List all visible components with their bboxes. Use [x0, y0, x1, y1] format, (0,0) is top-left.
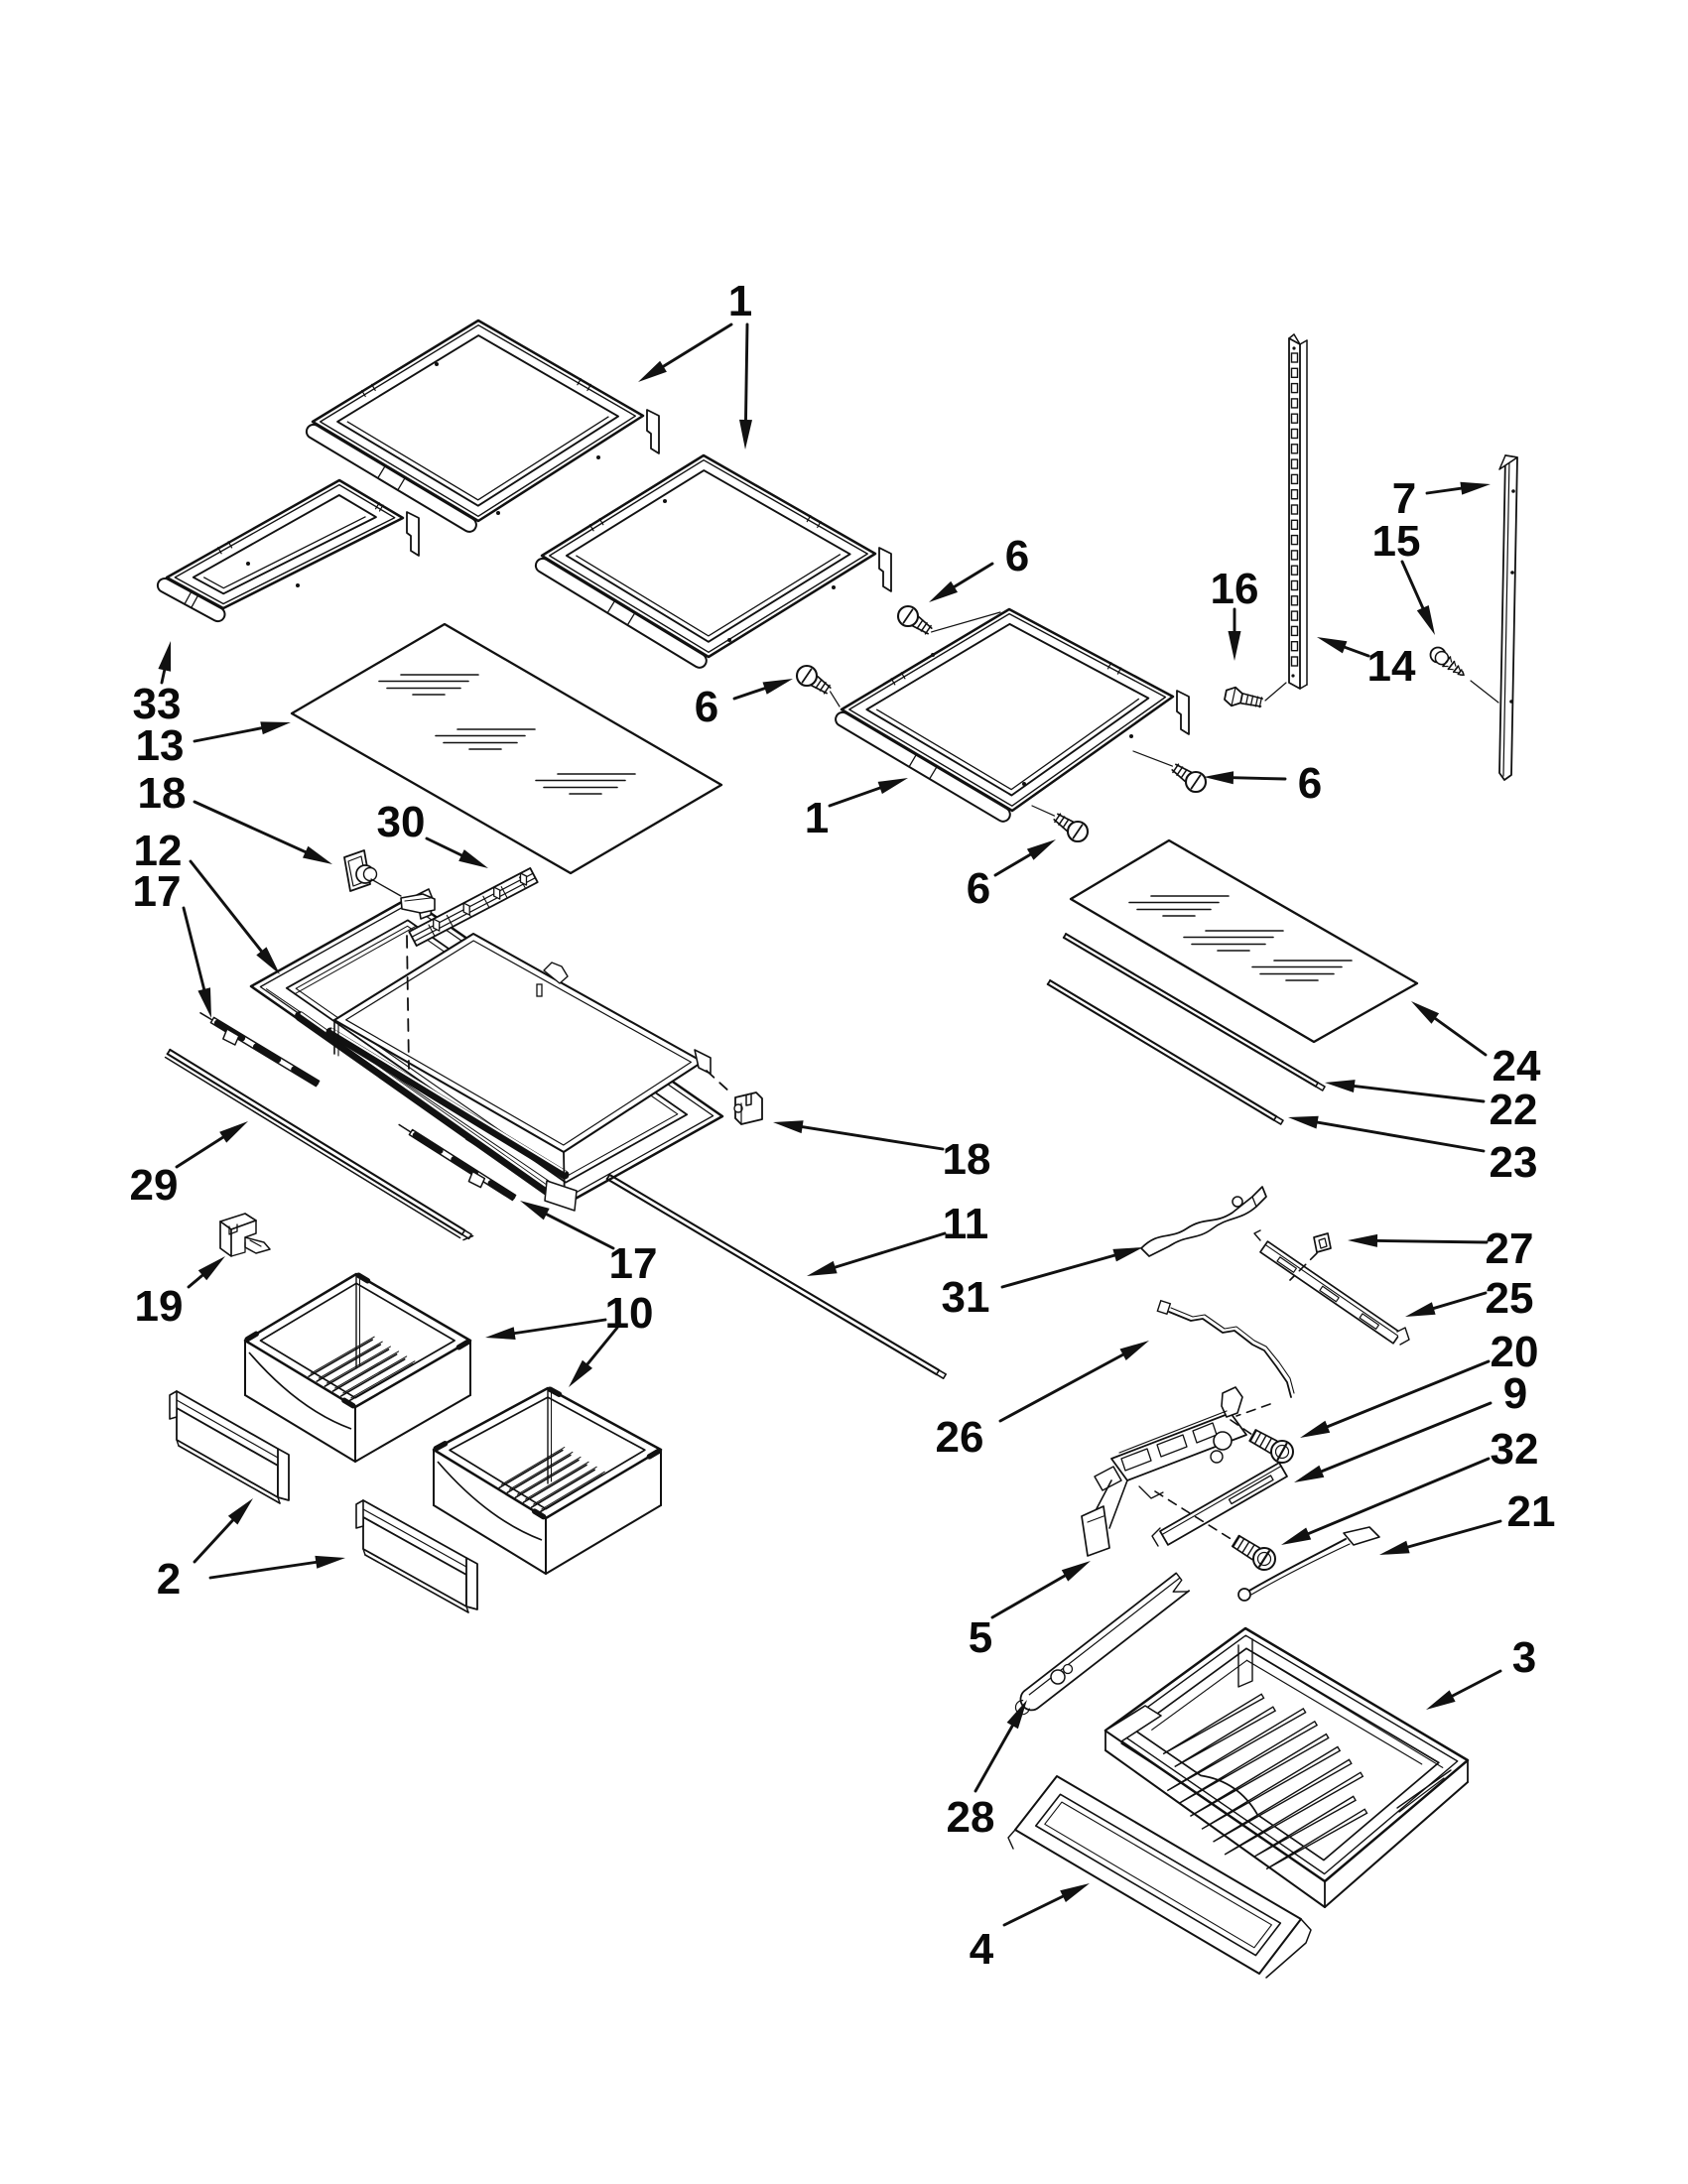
svg-text:3: 3 — [1512, 1633, 1536, 1682]
svg-text:14: 14 — [1367, 642, 1416, 691]
svg-text:4: 4 — [970, 1925, 994, 1974]
svg-text:23: 23 — [1490, 1138, 1538, 1187]
svg-text:29: 29 — [130, 1161, 179, 1210]
svg-text:15: 15 — [1372, 517, 1421, 566]
svg-text:6: 6 — [1298, 759, 1322, 808]
svg-text:32: 32 — [1491, 1425, 1539, 1474]
svg-text:17: 17 — [133, 867, 182, 916]
svg-text:18: 18 — [943, 1135, 991, 1184]
svg-text:18: 18 — [138, 769, 187, 818]
svg-text:19: 19 — [135, 1282, 184, 1331]
svg-text:2: 2 — [157, 1555, 181, 1604]
svg-text:28: 28 — [947, 1793, 995, 1842]
svg-text:17: 17 — [609, 1239, 658, 1288]
svg-text:5: 5 — [969, 1613, 992, 1662]
svg-text:6: 6 — [967, 864, 990, 913]
svg-text:1: 1 — [728, 277, 752, 325]
svg-text:22: 22 — [1490, 1086, 1538, 1134]
svg-text:27: 27 — [1486, 1224, 1534, 1273]
svg-text:25: 25 — [1486, 1274, 1534, 1323]
svg-text:6: 6 — [695, 683, 718, 731]
svg-text:1: 1 — [805, 794, 829, 842]
svg-text:7: 7 — [1392, 474, 1416, 523]
svg-text:9: 9 — [1503, 1369, 1527, 1418]
svg-text:13: 13 — [136, 721, 185, 770]
svg-text:10: 10 — [605, 1289, 654, 1338]
svg-text:30: 30 — [377, 798, 426, 846]
svg-text:6: 6 — [1005, 532, 1029, 580]
svg-text:16: 16 — [1211, 565, 1259, 613]
svg-text:21: 21 — [1507, 1487, 1556, 1536]
svg-text:24: 24 — [1493, 1042, 1541, 1091]
svg-text:26: 26 — [936, 1413, 984, 1462]
svg-text:11: 11 — [943, 1200, 989, 1248]
svg-text:31: 31 — [942, 1273, 990, 1322]
